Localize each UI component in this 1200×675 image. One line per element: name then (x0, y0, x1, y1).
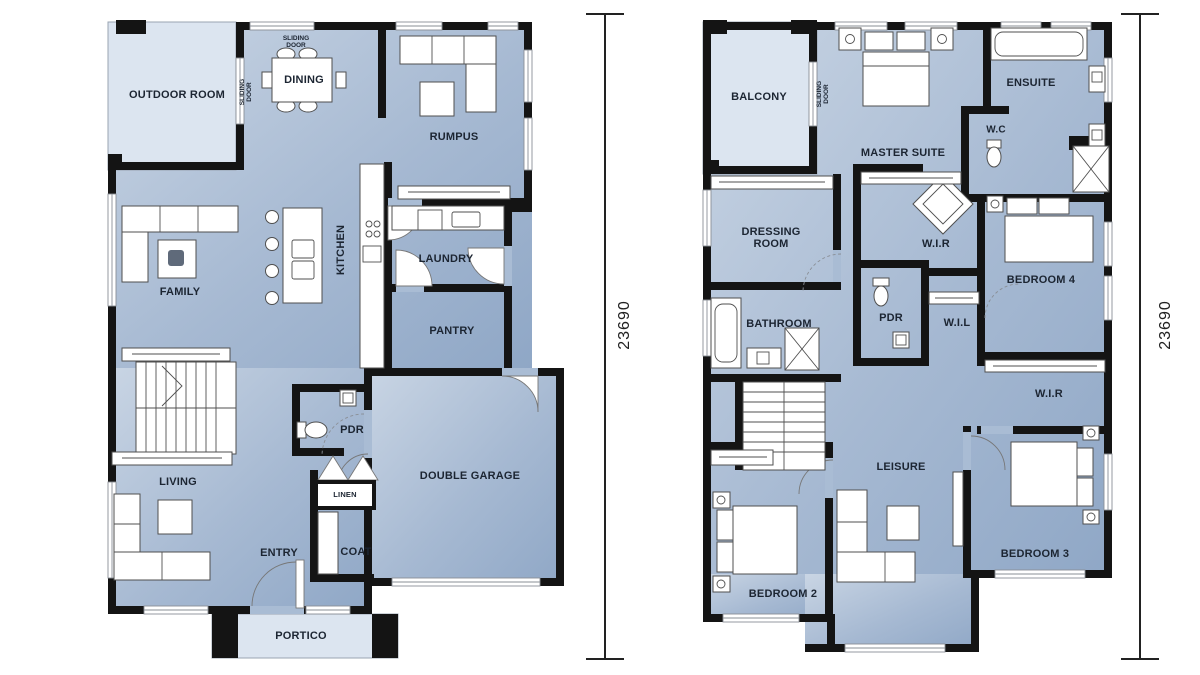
label-sliding-door-top: SLIDING DOOR (279, 35, 313, 49)
label-wir-master: W.I.R (922, 238, 950, 250)
label-family: FAMILY (160, 286, 201, 298)
garage-door (392, 578, 540, 586)
portico-pillar (372, 614, 398, 658)
coat-closet (318, 512, 338, 574)
vanity-icon (747, 348, 781, 368)
bathtub-icon (991, 28, 1087, 60)
label-coat: COAT (340, 546, 371, 558)
label-entry: ENTRY (260, 547, 298, 559)
entry-door-leaf (296, 560, 304, 608)
wardrobe-shelf-icon (929, 292, 979, 304)
label-balcony: BALCONY (731, 91, 787, 103)
label-sliding-door-side: SLIDING DOOR (239, 75, 253, 109)
wardrobe-shelf-icon (711, 176, 833, 189)
label-wir-bed3: W.I.R (1035, 388, 1063, 400)
balcony-post (703, 20, 727, 34)
label-bathroom: BATHROOM (746, 318, 812, 330)
label-pantry: PANTRY (429, 325, 474, 337)
ground-floor-drawing (100, 14, 570, 662)
first-floor-drawing (695, 14, 1120, 662)
rumpus-cabinet-icon (398, 186, 510, 199)
dimension-line-right (1139, 13, 1141, 660)
outdoor-post (116, 20, 146, 34)
label-dining: DINING (284, 74, 324, 86)
label-kitchen: KITCHEN (335, 225, 347, 275)
label-bedroom2: BEDROOM 2 (749, 588, 817, 600)
balcony-post (703, 160, 719, 174)
balcony-post (791, 20, 817, 34)
label-double-garage: DOUBLE GARAGE (420, 470, 520, 482)
wardrobe-shelf-icon (861, 172, 961, 184)
label-pdr-first: PDR (879, 312, 903, 324)
label-pdr-ground: PDR (340, 424, 364, 436)
first-floor-plan: BALCONY SLIDING DOOR MASTER SUITE ENSUIT… (695, 14, 1120, 662)
label-living: LIVING (159, 476, 197, 488)
label-portico: PORTICO (275, 630, 327, 642)
dimension-value-right: 23690 (1157, 300, 1175, 350)
ground-floor-plan: OUTDOOR ROOM SLIDING DOOR SLIDING DOOR D… (100, 14, 570, 662)
dimension-line-left (604, 13, 606, 660)
dimension-cap (1121, 13, 1159, 15)
media-cabinet-icon (122, 348, 230, 361)
label-rumpus: RUMPUS (430, 131, 479, 143)
dimension-cap (586, 658, 624, 660)
bathtub-icon (711, 298, 741, 368)
portico-pillar (212, 614, 238, 658)
label-outdoor-room: OUTDOOR ROOM (129, 89, 225, 101)
label-laundry: LAUNDRY (419, 253, 474, 265)
wardrobe-shelf-icon (985, 360, 1105, 372)
dimension-cap (1121, 658, 1159, 660)
label-master-suite: MASTER SUITE (861, 147, 945, 159)
dimension-value-left: 23690 (616, 300, 634, 350)
label-linen: LINEN (333, 491, 357, 499)
label-bedroom4: BEDROOM 4 (1007, 274, 1075, 286)
floor-plan-canvas: OUTDOOR ROOM SLIDING DOOR SLIDING DOOR D… (0, 0, 1200, 675)
label-bedroom3: BEDROOM 3 (1001, 548, 1069, 560)
hall-cabinet-icon (112, 452, 232, 465)
label-wc: W.C (986, 125, 1006, 136)
label-leisure: LEISURE (876, 461, 925, 473)
label-wil: W.I.L (944, 317, 971, 329)
stairs-icon (136, 362, 236, 454)
shower-icon (785, 328, 819, 370)
toilet-icon (987, 140, 1001, 167)
label-dressing-room: DRESSING ROOM (740, 226, 802, 250)
outdoor-post (108, 154, 122, 170)
laundry-bench-icon (392, 206, 504, 230)
tv-unit-icon (953, 472, 963, 546)
kitchen-bench-icon (360, 164, 384, 368)
label-ensuite: ENSUITE (1006, 77, 1055, 89)
shower-icon (1073, 146, 1109, 192)
label-sliding-door-first: SLIDING DOOR (816, 77, 830, 111)
dimension-cap (586, 13, 624, 15)
